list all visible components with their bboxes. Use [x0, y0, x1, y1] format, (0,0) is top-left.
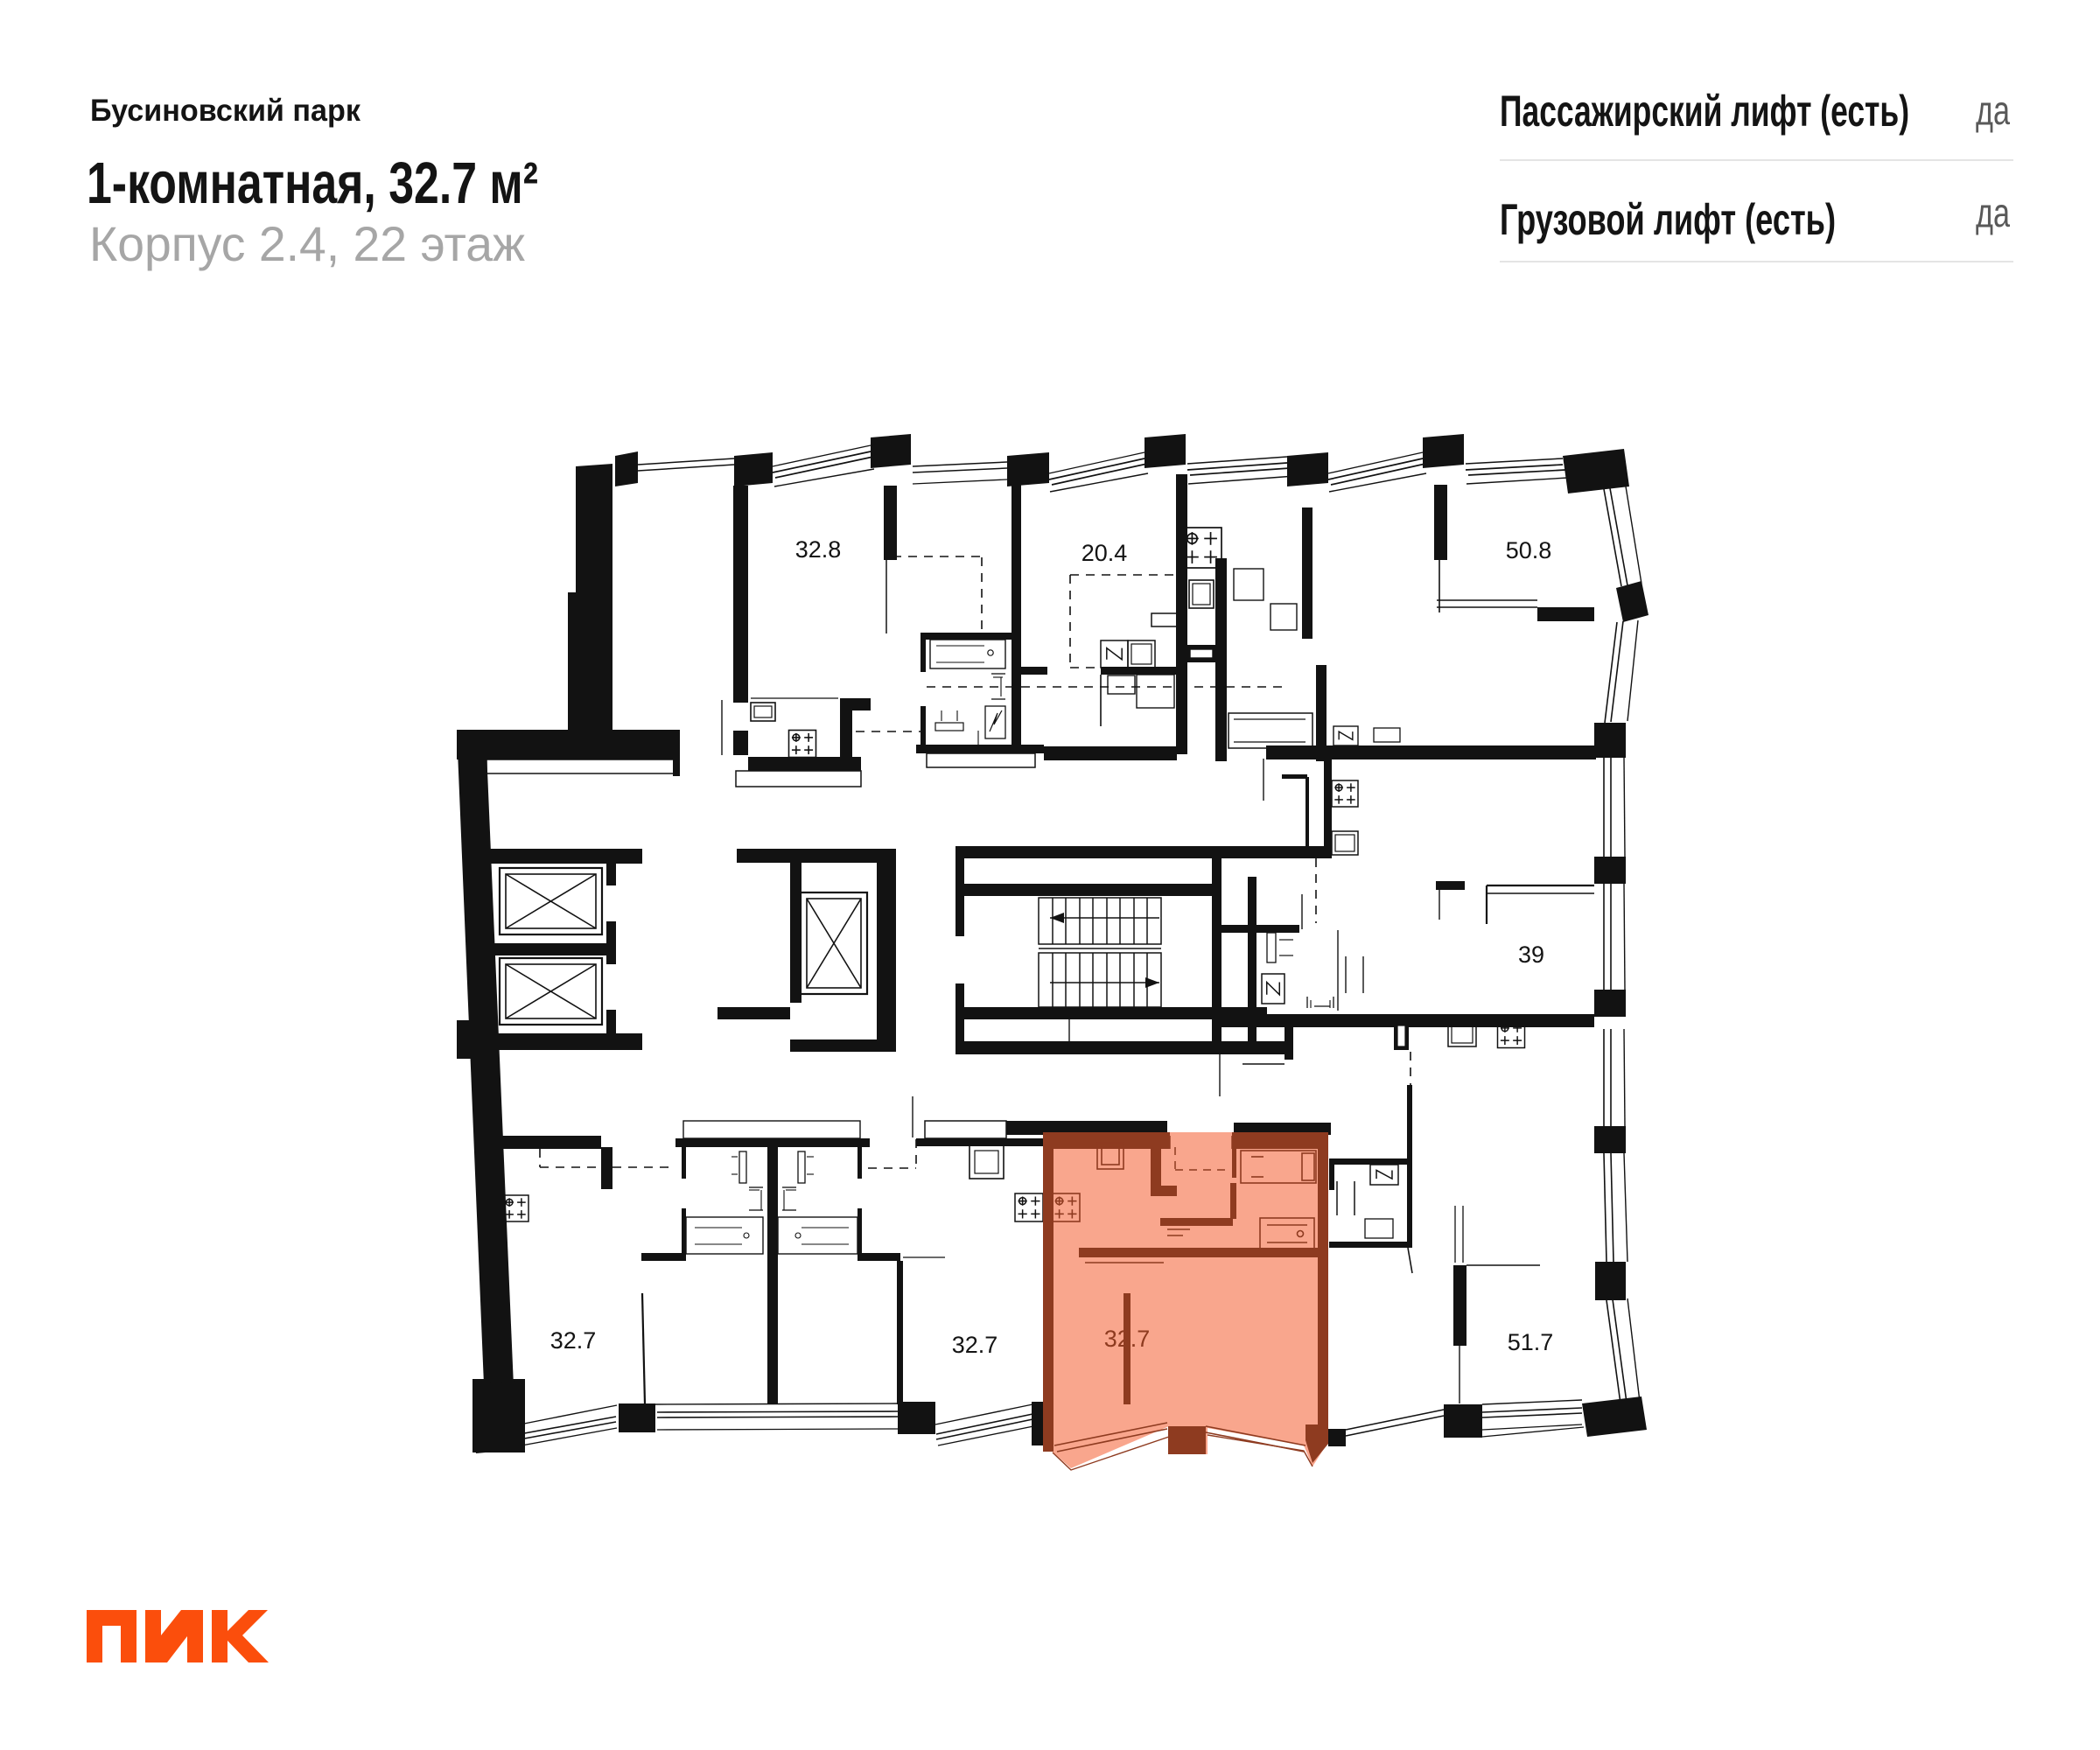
svg-text:20.4: 20.4: [1081, 540, 1128, 566]
svg-text:50.8: 50.8: [1506, 537, 1552, 563]
svg-text:Грузовой лифт (есть): Грузовой лифт (есть): [1500, 195, 1836, 244]
svg-text:да: да: [1976, 87, 2010, 133]
svg-text:39: 39: [1518, 941, 1544, 968]
svg-text:Пассажирский лифт (есть): Пассажирский лифт (есть): [1500, 87, 1909, 136]
svg-text:Бусиновский парк: Бусиновский парк: [90, 94, 360, 128]
svg-text:32.7: 32.7: [1104, 1326, 1151, 1352]
svg-text:да: да: [1976, 190, 2010, 235]
svg-text:Корпус 2.4, 22 этаж: Корпус 2.4, 22 этаж: [89, 216, 526, 271]
svg-text:1-комнатная, 32.7 м²: 1-комнатная, 32.7 м²: [87, 150, 538, 216]
svg-text:32.8: 32.8: [795, 536, 842, 563]
svg-text:32.7: 32.7: [550, 1327, 597, 1354]
svg-text:51.7: 51.7: [1508, 1329, 1554, 1355]
svg-text:32.7: 32.7: [952, 1332, 998, 1358]
